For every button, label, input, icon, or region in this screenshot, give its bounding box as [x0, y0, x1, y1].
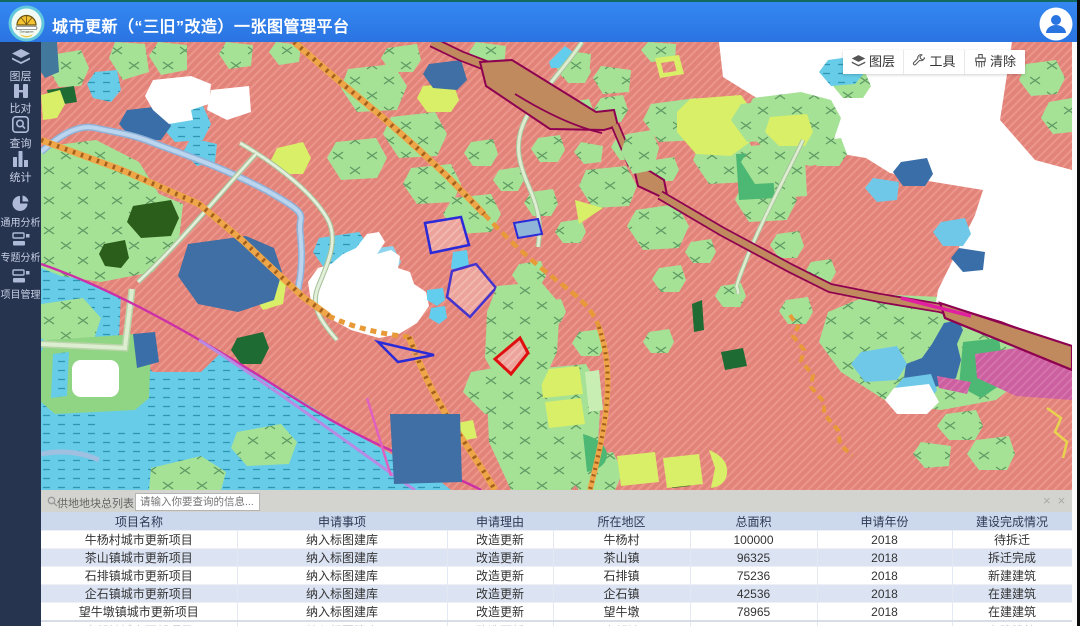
svg-text:Dongguan: Dongguan: [20, 30, 34, 34]
